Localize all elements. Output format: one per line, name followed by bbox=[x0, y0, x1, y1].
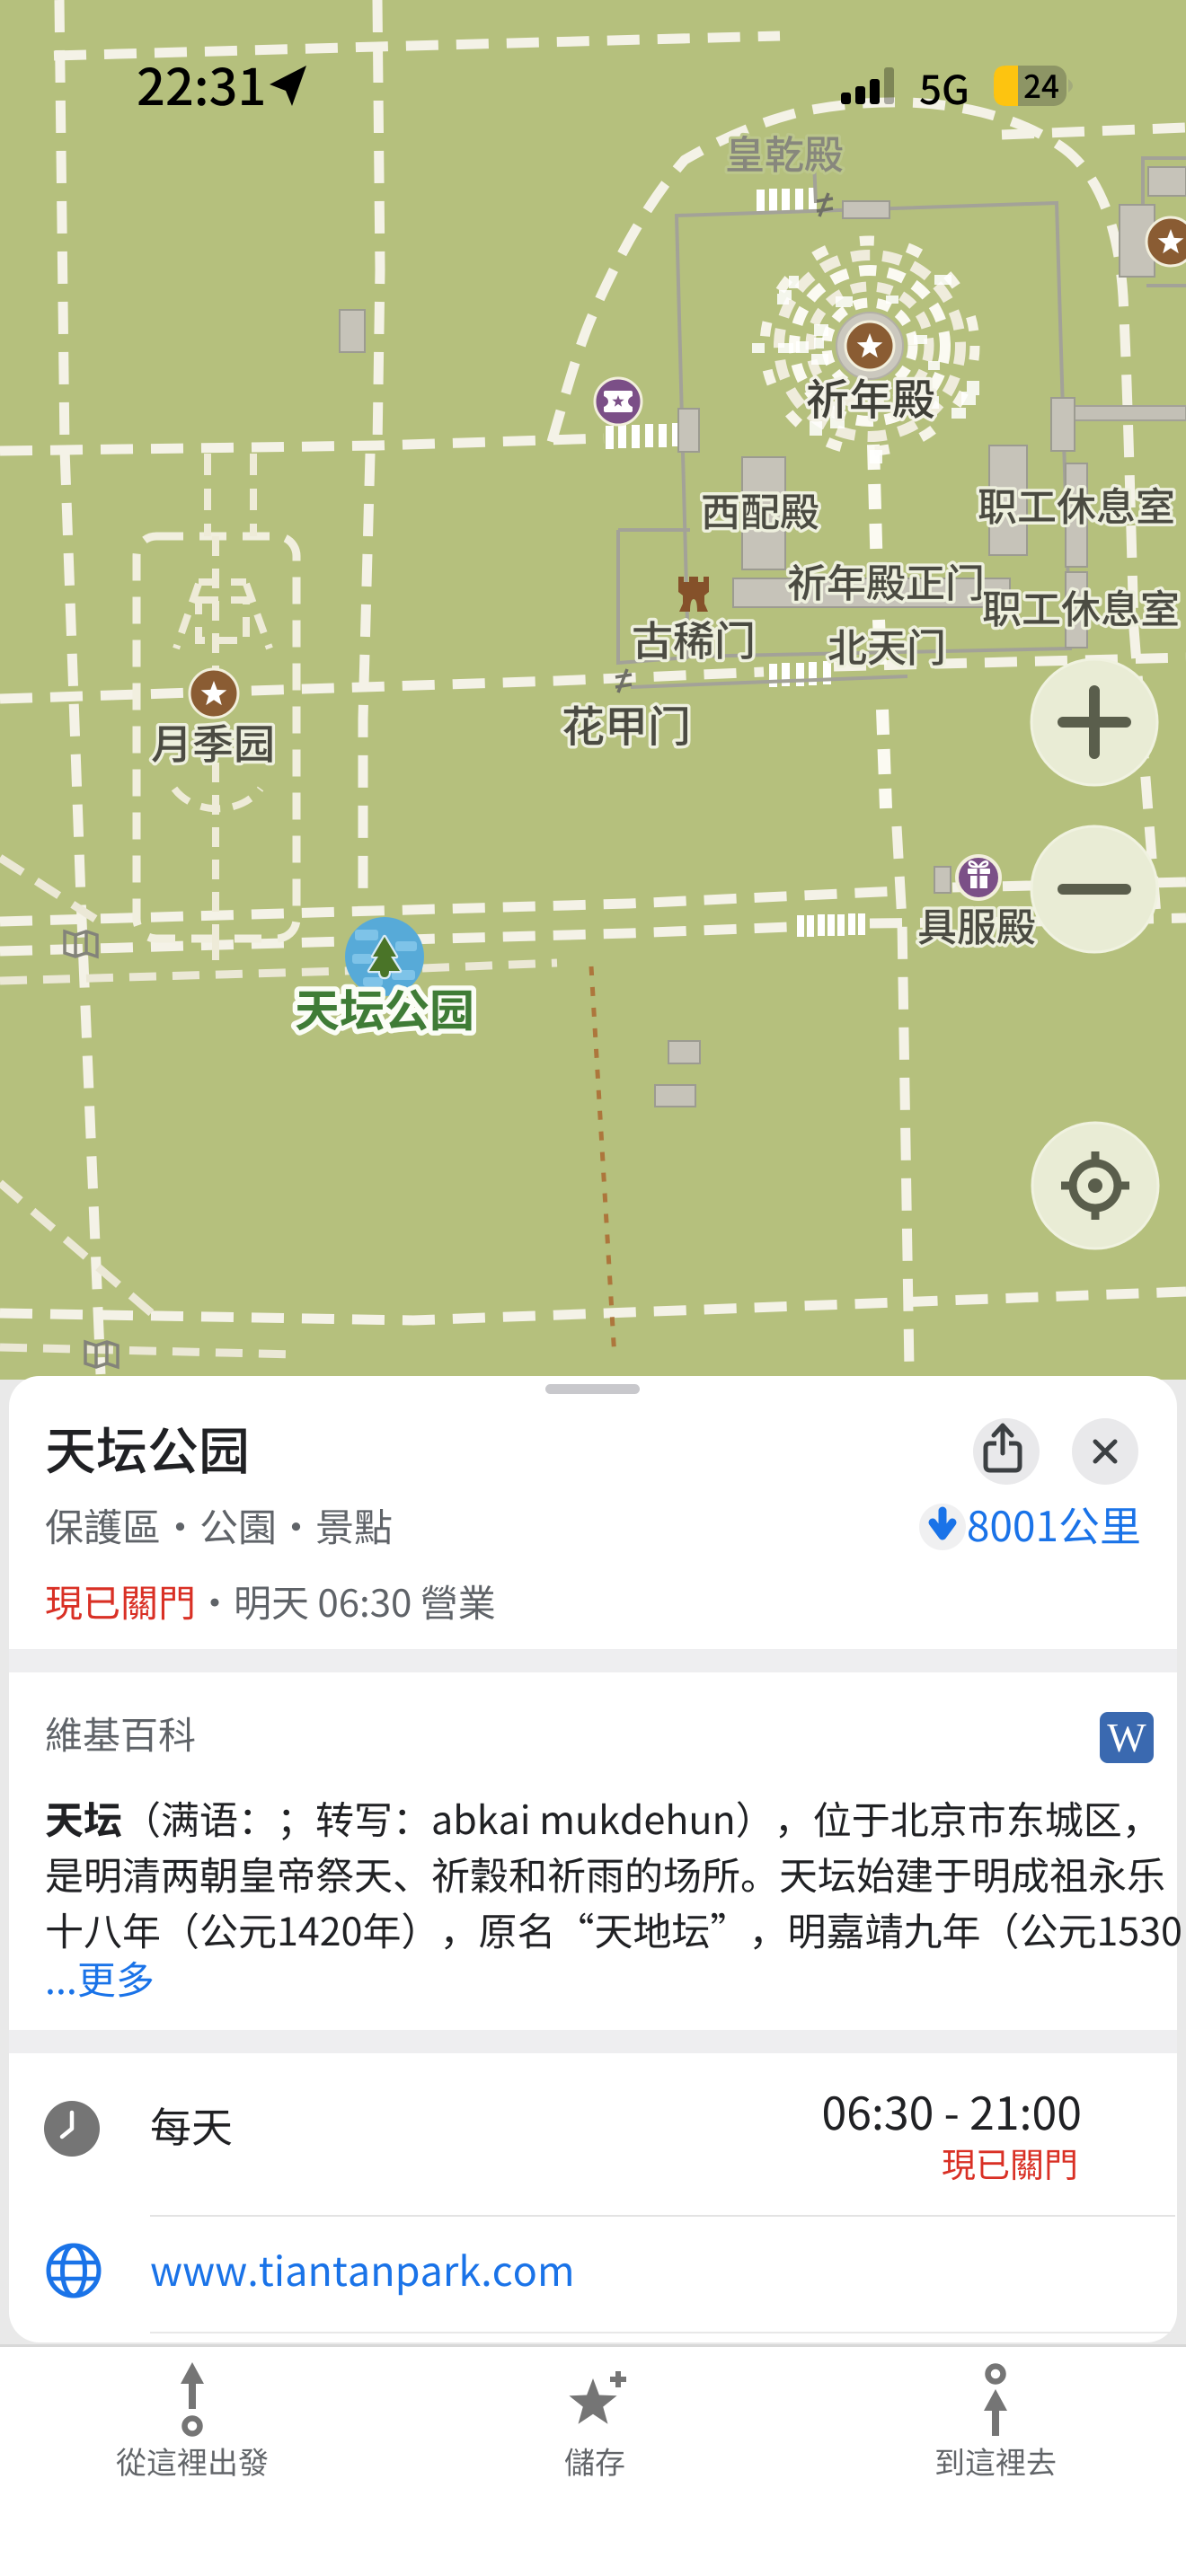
svg-text:W: W bbox=[1107, 1715, 1146, 1760]
